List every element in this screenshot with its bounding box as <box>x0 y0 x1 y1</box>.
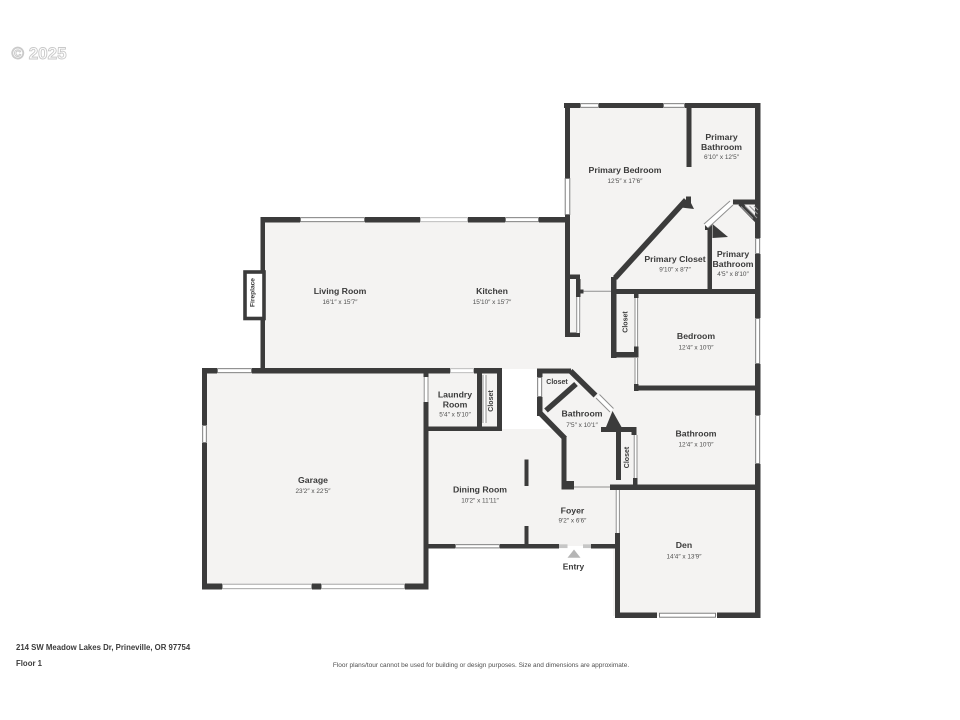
svg-text:Bathroom: Bathroom <box>675 429 716 439</box>
svg-text:Bathroom: Bathroom <box>561 409 602 419</box>
svg-text:Room: Room <box>443 400 468 410</box>
svg-text:Floor plans/tour cannot be use: Floor plans/tour cannot be used for buil… <box>333 662 629 669</box>
svg-text:4′5″ x 8′10″: 4′5″ x 8′10″ <box>717 271 749 278</box>
svg-text:14′4″ x 13′9″: 14′4″ x 13′9″ <box>667 554 703 561</box>
svg-text:Floor 1: Floor 1 <box>16 659 43 668</box>
svg-text:6′10″ x 12′5″: 6′10″ x 12′5″ <box>704 154 740 161</box>
svg-text:23′2″ x 22′5″: 23′2″ x 22′5″ <box>296 488 332 495</box>
svg-text:Laundry: Laundry <box>438 390 472 400</box>
svg-text:7′5″ x 10′1″: 7′5″ x 10′1″ <box>566 422 598 429</box>
svg-text:Primary Closet: Primary Closet <box>644 254 705 264</box>
svg-text:15′10″ x 15′7″: 15′10″ x 15′7″ <box>473 299 512 306</box>
svg-text:9′10″ x 8′7″: 9′10″ x 8′7″ <box>659 267 691 274</box>
svg-text:16′1″ x 15′7″: 16′1″ x 15′7″ <box>323 299 359 306</box>
svg-text:Closet: Closet <box>488 390 495 412</box>
svg-text:Fireplace: Fireplace <box>250 278 257 307</box>
svg-text:10′2″ x 11′11″: 10′2″ x 11′11″ <box>461 498 499 505</box>
svg-text:Den: Den <box>676 540 692 550</box>
svg-text:12′5″ x 17′6″: 12′5″ x 17′6″ <box>608 178 644 185</box>
svg-text:12′4″ x 10′0″: 12′4″ x 10′0″ <box>679 442 715 449</box>
svg-text:214 SW Meadow Lakes Dr, Prinev: 214 SW Meadow Lakes Dr, Prineville, OR 9… <box>16 643 191 652</box>
svg-text:Garage: Garage <box>298 475 328 485</box>
svg-text:9′2″ x 6′6″: 9′2″ x 6′6″ <box>559 518 588 525</box>
svg-text:Closet: Closet <box>622 311 629 333</box>
svg-text:Bedroom: Bedroom <box>677 331 715 341</box>
svg-text:© 2025: © 2025 <box>11 44 66 63</box>
svg-text:Primary Bedroom: Primary Bedroom <box>589 165 662 175</box>
svg-text:Entry: Entry <box>563 562 585 572</box>
svg-text:Bathroom: Bathroom <box>701 142 742 152</box>
svg-text:Bathroom: Bathroom <box>712 259 753 269</box>
svg-text:Primary: Primary <box>705 132 738 142</box>
svg-text:Closet: Closet <box>624 446 631 468</box>
svg-text:Dining Room: Dining Room <box>453 485 507 495</box>
svg-text:Closet: Closet <box>546 379 568 386</box>
svg-text:Kitchen: Kitchen <box>476 286 508 296</box>
svg-text:12′4″ x 10′0″: 12′4″ x 10′0″ <box>679 345 715 352</box>
svg-text:Living Room: Living Room <box>314 286 367 296</box>
svg-text:5′4″ x 5′10″: 5′4″ x 5′10″ <box>439 412 471 419</box>
svg-text:Foyer: Foyer <box>561 506 585 516</box>
svg-text:Primary: Primary <box>717 249 750 259</box>
